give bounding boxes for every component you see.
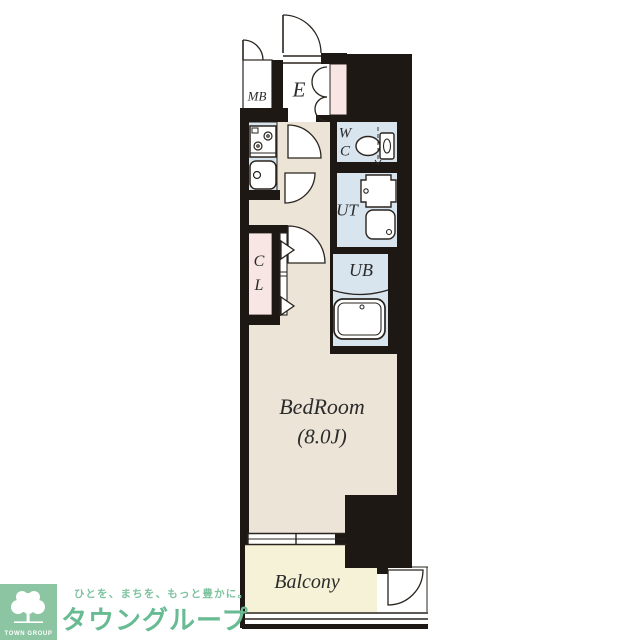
cl-label-line2: L <box>255 278 264 294</box>
town-group-label: TOWN GROUP <box>0 631 57 637</box>
ut-fixtures <box>361 175 396 239</box>
sliding-window-icon <box>245 533 347 545</box>
wc-label-line1: W <box>339 127 352 142</box>
wall-segment <box>272 233 280 315</box>
wall-segment <box>330 254 333 346</box>
logo-brand: タウングループ <box>61 600 248 637</box>
mb-label: MB <box>248 90 267 103</box>
bathtub-icon <box>334 299 385 339</box>
wall-segment <box>337 162 397 173</box>
wall-segment <box>330 122 337 254</box>
wall-segment <box>240 315 280 325</box>
shoe-cabinet <box>330 64 347 115</box>
wall-segment <box>345 495 412 568</box>
cl-room <box>245 233 272 315</box>
balcony-railing <box>242 613 428 629</box>
logo-tagline: ひとを、まちを、もっと豊かに。 <box>74 586 249 601</box>
ut-label: UT <box>336 202 358 219</box>
cl-label-line1: C <box>254 254 265 270</box>
ub-label: UB <box>349 261 373 279</box>
wall-segment <box>316 115 397 122</box>
wall-segment <box>240 225 280 233</box>
stove-icon <box>250 126 276 157</box>
washing-machine-icon <box>361 175 396 207</box>
utility-sink-icon <box>366 210 395 239</box>
wall-segment <box>397 121 412 495</box>
entrance-room <box>283 63 330 122</box>
kitchen-fixtures <box>250 126 276 189</box>
wall-segment <box>388 254 397 346</box>
toilet-icon <box>356 137 380 156</box>
floorplan-drawing <box>0 0 640 640</box>
wall-segment <box>240 190 280 200</box>
door-swing-icon <box>388 570 423 605</box>
entrance-label: E <box>293 80 306 101</box>
wall-segment <box>321 53 347 64</box>
wc-label-line2: C <box>340 145 350 160</box>
wall-segment <box>272 60 283 115</box>
wall-segment <box>330 247 397 254</box>
floorplan-page: MB E W C UT UB C L BedRoom (8.0J) Balcon… <box>0 0 640 640</box>
entrance-threshold <box>283 56 321 63</box>
town-group-logo: TOWN GROUP <box>0 584 57 640</box>
wall-segment <box>377 560 388 574</box>
balcony-label: Balcony <box>274 572 340 592</box>
door-swing-icon <box>283 15 321 53</box>
door-swing-icon <box>243 40 263 60</box>
bedroom-label: BedRoom <box>279 396 365 418</box>
bedroom-size-label: (8.0J) <box>297 427 347 448</box>
wall-segment <box>280 225 288 233</box>
wall-segment <box>347 54 412 121</box>
